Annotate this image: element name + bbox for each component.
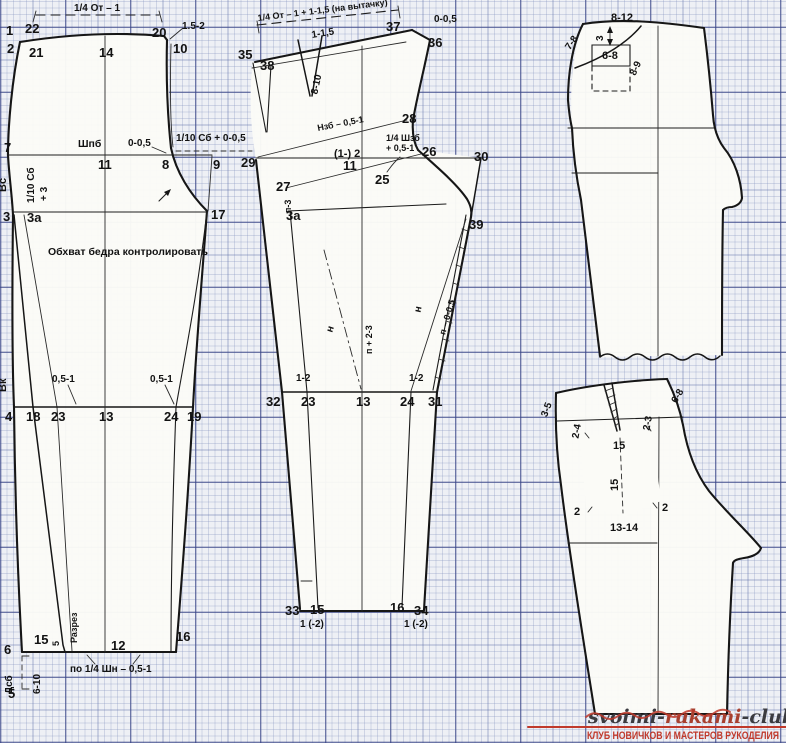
back-point-15: 15: [310, 602, 324, 617]
back-shzb-label-1: 1/4 Шзб: [386, 133, 420, 143]
pattern-drawing: 1/4 От – 1 1 22 20 1.5-2 2 21 14 10 Шпб …: [0, 0, 786, 743]
back-shzb-label-2: + 0,5-1: [386, 143, 414, 153]
back-point-24: 24: [400, 394, 415, 409]
back-hem-12-right: 1 (-2): [404, 619, 428, 630]
front-hem-note-leaders: [87, 655, 140, 664]
back-point-36: 36: [428, 35, 442, 50]
front-sb005-label: 1/10 Сб + 0-0,5: [176, 132, 246, 144]
back-point-25: 25: [375, 172, 389, 187]
pocket-2-right: 2: [662, 502, 668, 514]
upper-right-3-label: 3: [595, 35, 606, 41]
sewing-pattern-sheet: 1/4 От – 1 1 22 20 1.5-2 2 21 14 10 Шпб …: [0, 0, 786, 743]
watermark: svoimi-rukami-club.ru КЛУБ НОВИЧКОВ И МА…: [528, 706, 786, 742]
lower-right-35-label: 3-5: [539, 401, 554, 419]
watermark-site-c: -club.ru: [741, 706, 786, 728]
back-knee-12-left: 1-2: [296, 373, 311, 384]
back-hem-12-left: 1 (-2): [300, 619, 324, 630]
back-point-23: 23: [301, 394, 315, 409]
back-point-33: 33: [285, 603, 299, 618]
front-knee-05-left: 0,5-1: [52, 374, 75, 385]
back-point-34: 34: [414, 603, 429, 618]
back-p23v-label: п + 2-3: [364, 325, 374, 354]
front-point-12: 12: [111, 638, 125, 653]
front-hip-note: Обхват бедра контролировать: [48, 246, 208, 258]
front-point-6: 6: [4, 642, 11, 657]
front-plus3-label: + 3: [39, 186, 50, 201]
front-hem-ext-ticks: [22, 656, 29, 689]
pocket-15-top: 15: [613, 440, 625, 452]
upper-right-inseam: [722, 210, 723, 355]
front-with-pocket-pattern: 8-12 7-8 3 6-8 8-9: [563, 12, 742, 360]
pocket-1314-label: 13-14: [610, 522, 639, 534]
front-point-18: 18: [26, 409, 40, 424]
front-vk-label: Вк: [0, 378, 9, 392]
front-right-offset-line: [170, 44, 173, 147]
front-point-2: 2: [7, 41, 14, 56]
back-point-38: 38: [260, 58, 274, 73]
back-point-11: 11: [343, 158, 357, 173]
front-point-4: 4: [5, 409, 13, 424]
front-point-20: 20: [152, 25, 166, 40]
front-point-22: 22: [25, 21, 39, 36]
back-point-16: 16: [390, 600, 404, 615]
watermark-caption: КЛУБ НОВИЧКОВ И МАСТЕРОВ РУКОДЕЛИЯ: [587, 730, 779, 742]
back-point-26: 26: [422, 144, 436, 159]
front-inc-152: 1.5-2: [182, 21, 205, 32]
front-point-3a: 3а: [27, 210, 42, 225]
upper-right-68-label: 6-8: [602, 50, 618, 62]
pocket-2-left: 2: [574, 506, 580, 518]
front-waist-dim-label: 1/4 От – 1: [74, 3, 120, 14]
back-dim-115: 1-1,5: [311, 26, 336, 40]
front-point-13: 13: [99, 409, 113, 424]
front-point-11: 11: [98, 157, 112, 172]
back-point-13: 13: [356, 394, 370, 409]
front-point-7: 7: [4, 140, 11, 155]
front-point-16: 16: [176, 629, 190, 644]
back-half-pattern: 1/4 От – 1 + 1-1,5 (на вытачку) 1-1,5 37…: [238, 0, 488, 630]
front-cut-5: 5: [51, 641, 61, 646]
front-point-5: 5: [8, 686, 15, 701]
back-knee-12-right: 1-2: [409, 373, 424, 384]
back-point-3a: 3а: [286, 208, 301, 223]
back-point-28: 28: [402, 111, 416, 126]
front-point-9: 9: [213, 157, 220, 172]
front-point-10: 10: [173, 41, 187, 56]
watermark-site-a: svoimi-: [587, 706, 665, 728]
back-point-30: 30: [474, 149, 488, 164]
back-point-31: 31: [428, 394, 442, 409]
front-point-15: 15: [34, 632, 48, 647]
front-sb-label: 1/10 Сб: [25, 167, 37, 203]
back-point-32: 32: [266, 394, 280, 409]
front-point-1: 1: [6, 23, 13, 38]
front-point-14: 14: [99, 45, 114, 60]
front-knee-05-right: 0,5-1: [150, 374, 173, 385]
back-point-29: 29: [241, 155, 255, 170]
front-point-3: 3: [3, 209, 10, 224]
front-point-21: 21: [29, 45, 43, 60]
front-point-23: 23: [51, 409, 65, 424]
back-point-35: 35: [238, 47, 252, 62]
back-with-pocket-pattern: 3-5 6-8 2-4 2-3 15 15 2 2 13-14: [539, 379, 761, 714]
front-half-pattern: 1/4 От – 1 1 22 20 1.5-2 2 21 14 10 Шпб …: [0, 3, 252, 701]
front-razrez-label: Разрез: [69, 612, 79, 643]
front-9-17-line: [208, 156, 212, 211]
upper-right-812-label: 8-12: [611, 12, 633, 24]
front-point-8: 8: [162, 157, 169, 172]
front-hem-note: по 1/4 Шн – 0,5-1: [70, 664, 152, 675]
back-waist-dim-label: 1/4 От – 1 + 1-1,5 (на вытачку): [257, 0, 388, 23]
back-point-39: 39: [469, 217, 483, 232]
front-point-17: 17: [211, 207, 225, 222]
front-vs-label: Вс: [0, 178, 9, 192]
back-005-label: 0-0,5: [434, 14, 457, 25]
front-shpb-label: Шпб: [78, 138, 102, 150]
front-point-19: 19: [187, 409, 201, 424]
front-610-label: 6-10: [32, 674, 43, 694]
back-point-37: 37: [386, 19, 400, 34]
front-005-label: 0-0,5: [128, 138, 151, 149]
front-fill: [8, 34, 207, 652]
back-point-27: 27: [276, 179, 290, 194]
pocket-15-mid: 15: [609, 479, 621, 491]
upper-right-fill: [571, 21, 742, 357]
front-point-24: 24: [164, 409, 179, 424]
